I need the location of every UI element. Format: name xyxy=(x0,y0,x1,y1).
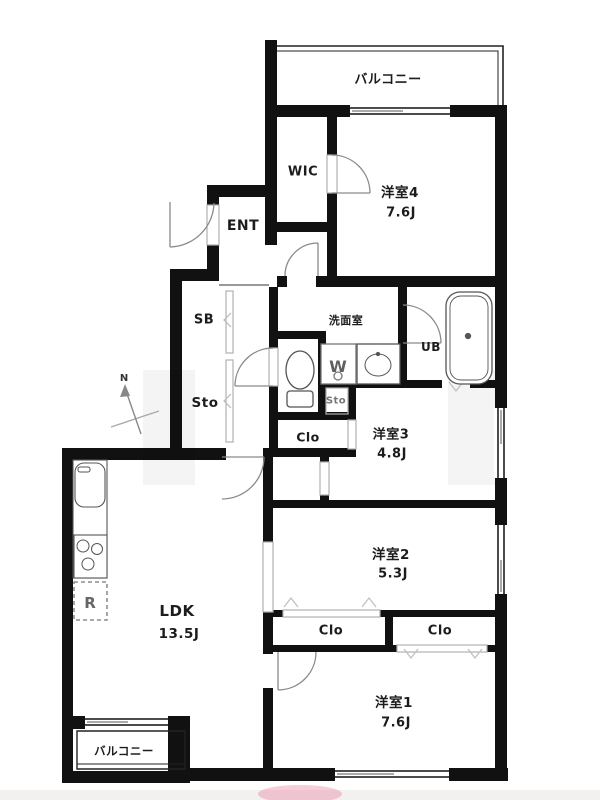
fridge-space xyxy=(74,582,107,620)
ub-door-arc xyxy=(403,305,441,343)
chevron-icon xyxy=(362,598,376,607)
label-balcony-bottom: バルコニー xyxy=(94,743,154,759)
vanity-basin xyxy=(365,354,391,376)
kitchen-sink-icon xyxy=(75,463,105,507)
label-room4-size: 7.6J xyxy=(386,206,416,221)
floor-plan: N W R バルコニー WIC 洋室4 7.6J ENT SB Sto 洗面室 … xyxy=(0,0,600,800)
toilet-door-arc xyxy=(235,348,273,386)
wall xyxy=(277,276,287,287)
bathtub-icon xyxy=(446,292,492,384)
bathtub-drain xyxy=(466,334,471,339)
ldk-door-arc xyxy=(222,457,264,499)
chevron-icon xyxy=(284,598,298,607)
label-sto-small: Sto xyxy=(326,396,346,407)
wall xyxy=(398,287,407,386)
label-clo-hall: Clo xyxy=(296,430,320,445)
label-room4: 洋室4 xyxy=(381,181,419,201)
sto-bifold-frame xyxy=(226,360,233,442)
wall xyxy=(263,448,356,457)
toilet-tank-icon xyxy=(287,391,313,407)
chevron-icon xyxy=(224,394,231,408)
room4-door-arc xyxy=(332,155,370,193)
washer-drain xyxy=(334,372,342,380)
vanity-faucet xyxy=(377,353,380,356)
wall xyxy=(182,448,226,460)
wall xyxy=(73,716,85,729)
fridge-label: R xyxy=(84,594,96,612)
label-room1-size: 7.6J xyxy=(381,716,411,731)
wall xyxy=(316,276,337,287)
room2-sliding-door xyxy=(263,542,273,612)
chevron-icon xyxy=(449,382,463,391)
label-room2: 洋室2 xyxy=(372,543,410,563)
label-ub: UB xyxy=(421,340,441,354)
bathtub-inner xyxy=(450,296,488,380)
wall xyxy=(265,40,277,245)
wall xyxy=(327,193,337,276)
stove-icon xyxy=(74,535,107,578)
wall xyxy=(263,612,273,654)
stove-burner xyxy=(92,544,103,555)
watermark-pink xyxy=(258,785,342,800)
label-room3: 洋室3 xyxy=(373,424,410,443)
washroom-door-arc xyxy=(285,243,318,276)
image-edge-strip xyxy=(0,790,600,800)
compass-arrowhead xyxy=(120,384,130,397)
wall xyxy=(318,380,442,388)
toilet-door-frame xyxy=(269,348,278,386)
wall xyxy=(337,276,495,287)
wall xyxy=(190,768,508,781)
wall xyxy=(269,412,356,420)
kitchen-faucet xyxy=(78,467,90,472)
wall xyxy=(62,448,187,460)
wall xyxy=(269,287,278,348)
watermark xyxy=(143,370,195,485)
wall xyxy=(495,105,507,781)
wall xyxy=(277,105,507,117)
toilet-icon xyxy=(286,351,314,389)
label-clo-right: Clo xyxy=(428,624,452,639)
window-ldk-balcony xyxy=(85,715,168,730)
wall xyxy=(273,645,507,652)
vanity-icon xyxy=(357,344,400,384)
label-room3-size: 4.8J xyxy=(377,447,407,462)
chevron-icon xyxy=(224,313,231,327)
compass-cross xyxy=(111,411,159,427)
wall xyxy=(327,117,337,155)
room1-door-arc xyxy=(278,652,316,690)
wall xyxy=(348,388,356,456)
wall xyxy=(170,269,182,457)
wall xyxy=(263,448,273,542)
label-clo-left: Clo xyxy=(319,624,343,639)
label-wic: WIC xyxy=(288,165,318,180)
wall xyxy=(207,185,219,205)
stove-burner xyxy=(82,558,94,570)
plan-graphics: N W R xyxy=(0,0,600,800)
wall xyxy=(470,380,495,388)
compass-needle xyxy=(125,388,141,434)
kitchen-counter xyxy=(73,460,107,578)
sb-bifold-frame xyxy=(226,291,233,353)
wall xyxy=(62,448,73,783)
label-ldk-size: 13.5J xyxy=(159,626,200,642)
stove-burner xyxy=(77,540,89,552)
label-ldk: LDK xyxy=(159,602,194,620)
label-room2-size: 5.3J xyxy=(378,567,408,582)
washer-pan-icon xyxy=(321,344,356,384)
label-sb: SB xyxy=(194,313,214,328)
wall xyxy=(263,688,273,781)
washer-label: W xyxy=(329,357,347,376)
front-door-arc xyxy=(170,202,214,247)
front-door-frame xyxy=(207,205,219,245)
wall xyxy=(168,716,190,782)
label-balcony-top: バルコニー xyxy=(354,69,421,88)
room4-door-frame xyxy=(327,155,337,193)
compass-north-label: N xyxy=(120,373,128,384)
label-washroom: 洗面室 xyxy=(329,312,364,328)
label-ent: ENT xyxy=(227,218,259,234)
label-room1: 洋室1 xyxy=(375,691,413,711)
compass: N xyxy=(111,373,159,434)
wall xyxy=(263,500,507,508)
label-sto-hall: Sto xyxy=(192,395,219,411)
